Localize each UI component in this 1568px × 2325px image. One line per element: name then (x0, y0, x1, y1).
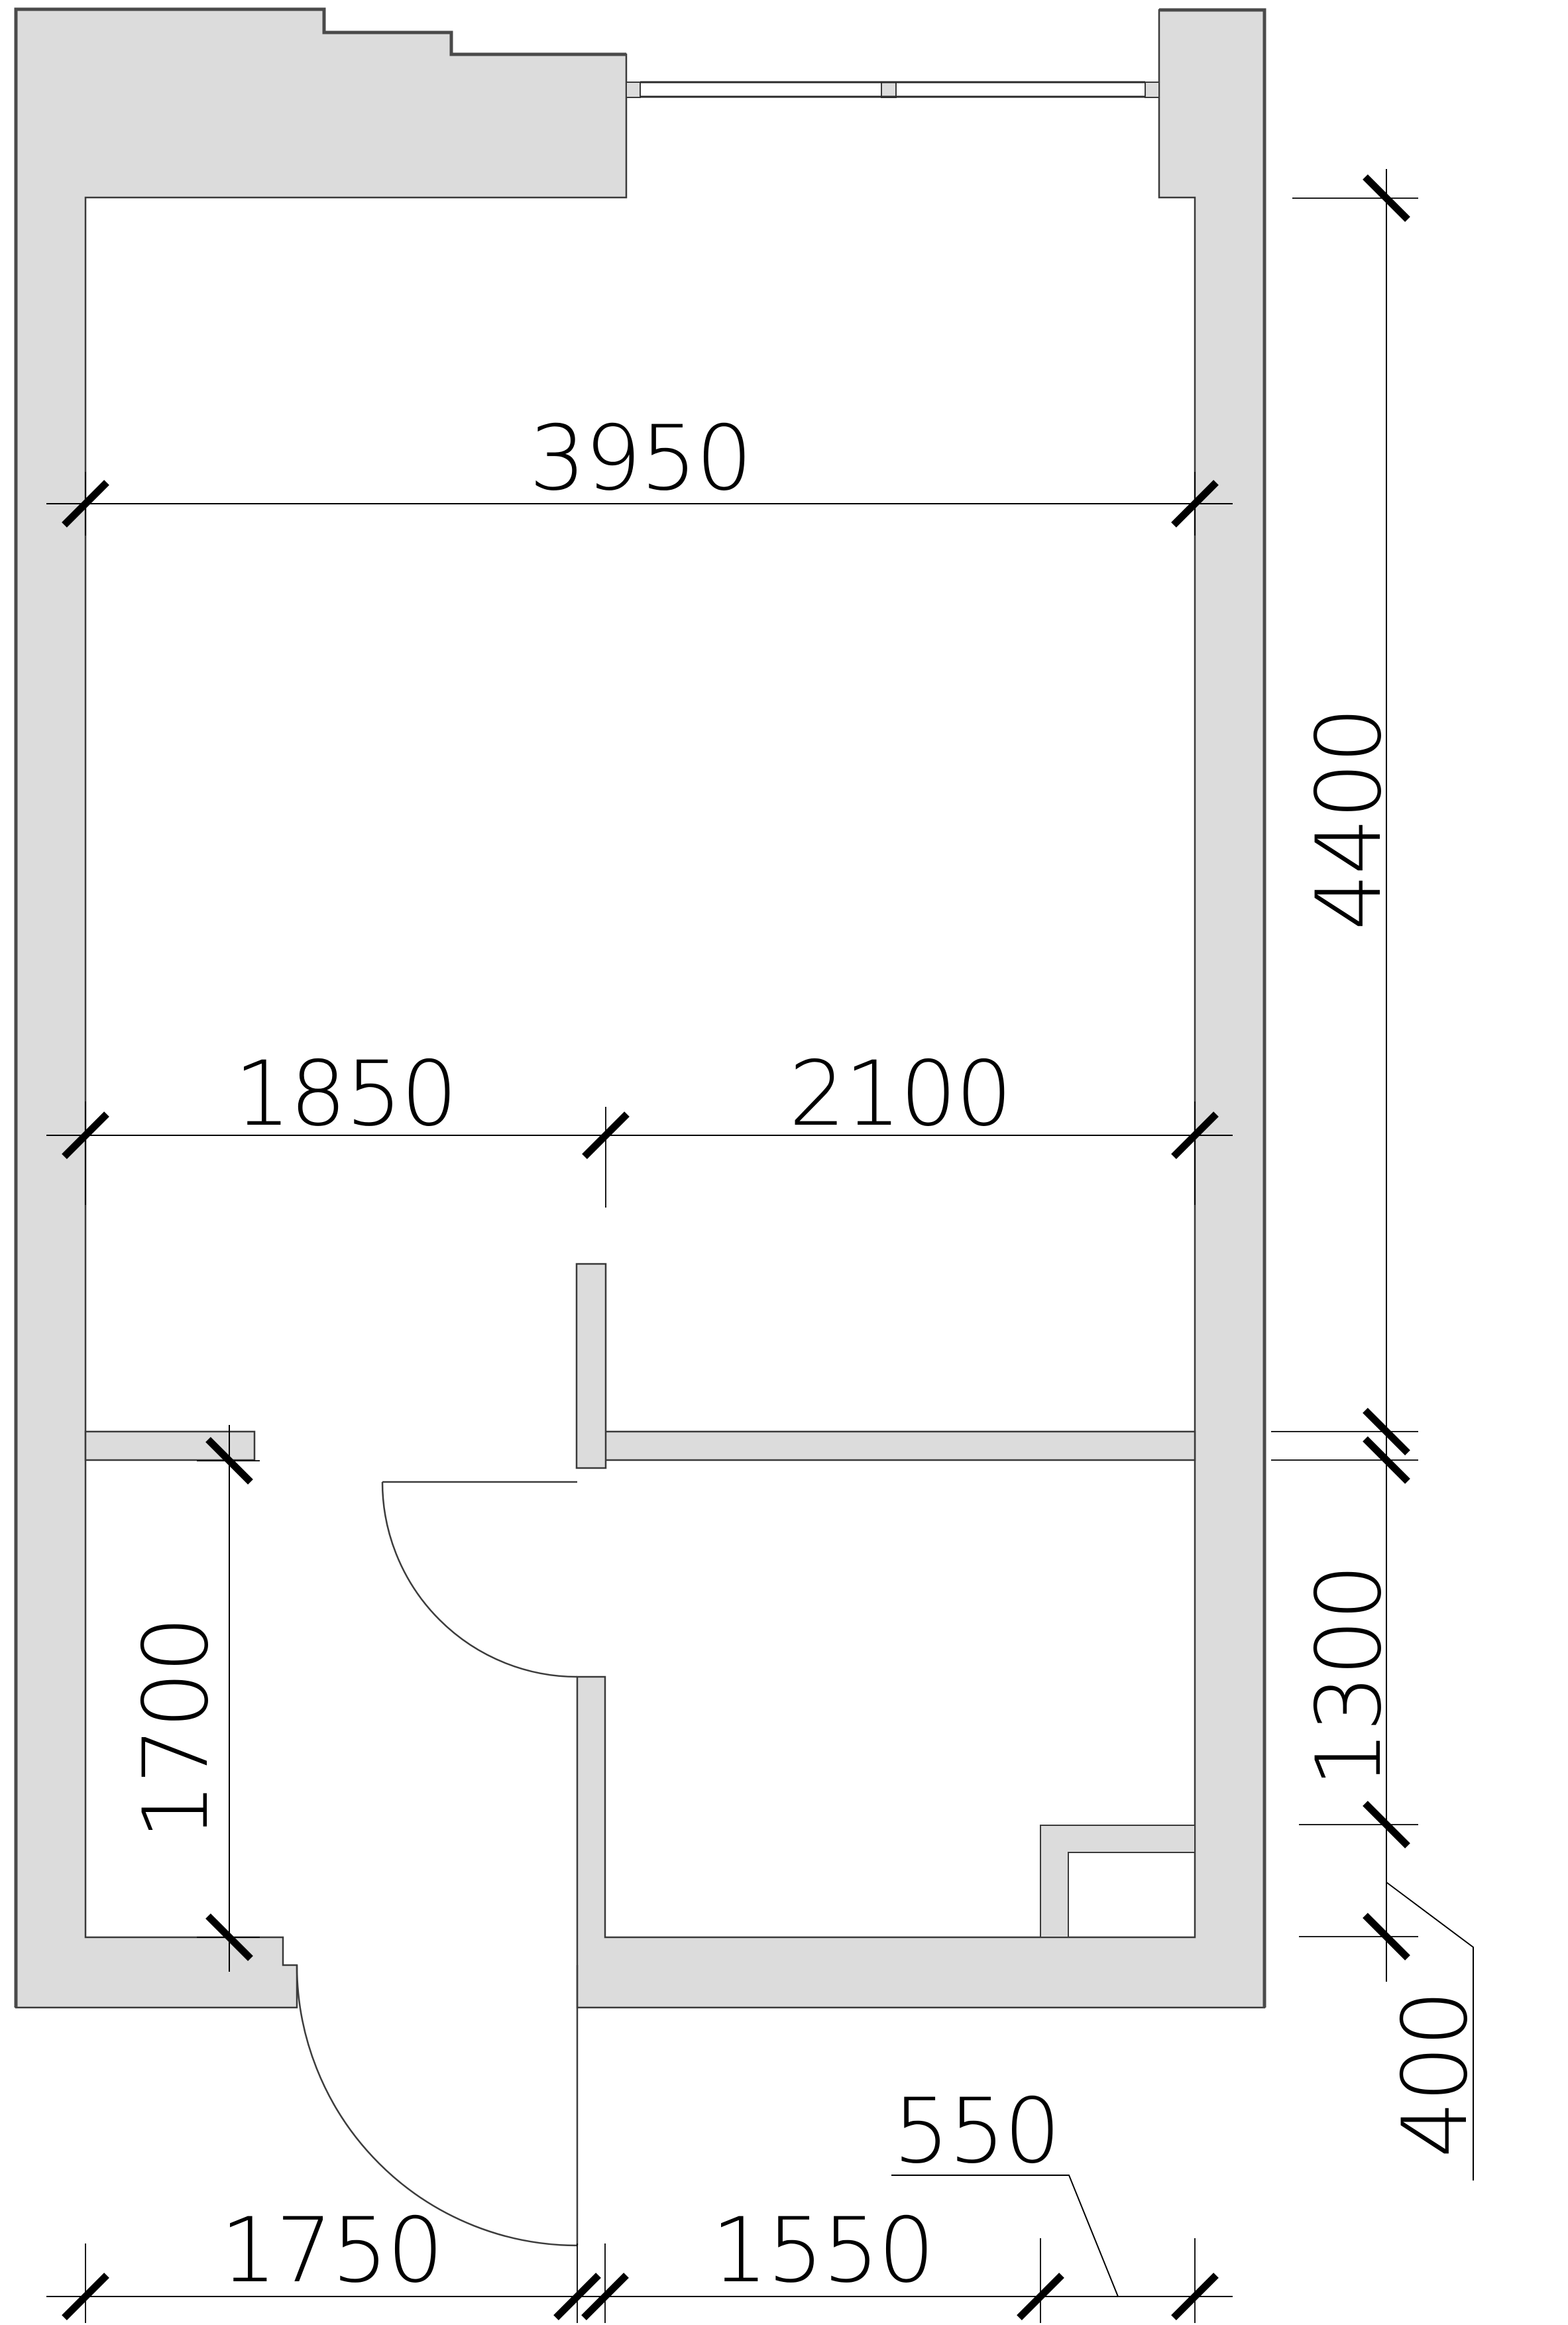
dim-text-1550: 1550 (711, 2198, 934, 2302)
dimension-top-width: 3950 (46, 406, 1233, 536)
window-jamb-right (1145, 82, 1159, 97)
window-jamb-left (626, 82, 640, 97)
dimension-room-split: 1850 2100 (46, 1042, 1233, 1208)
outer-edge-left-top (16, 9, 626, 2008)
dim-text-550: 550 (893, 2079, 1060, 2183)
wall-left-top-mass (16, 9, 626, 2008)
wall-partition-upper (577, 1264, 606, 1468)
dim-text-4400: 4400 (1297, 708, 1401, 931)
wall-right-mass (577, 10, 1264, 2008)
dim-text-400: 400 (1383, 1991, 1487, 2158)
dim-text-1750: 1750 (220, 2198, 443, 2302)
dim-text-1850: 1850 (234, 1042, 457, 1146)
shaft-box (1040, 1825, 1195, 1937)
floor-plan-page: 3950 1850 2100 4400 1300 400 (0, 0, 1568, 2325)
dimension-left-hall: 1700 (124, 1425, 260, 1972)
dimension-bottom-chain: 1750 1550 550 (46, 2079, 1233, 2323)
dim-text-1700: 1700 (124, 1617, 228, 1840)
dim-text-2100: 2100 (789, 1042, 1011, 1146)
floor-plan-canvas: 3950 1850 2100 4400 1300 400 (0, 0, 1568, 2325)
dim-text-3950: 3950 (529, 406, 752, 510)
interior-door (382, 1482, 577, 1677)
wall-middle (605, 1432, 1195, 1460)
dim-text-1300: 1300 (1297, 1565, 1401, 1787)
window-mullion (881, 82, 896, 97)
interior-door-swing-arc (382, 1482, 577, 1677)
dimension-right-chain: 4400 1300 400 (1271, 169, 1487, 2181)
